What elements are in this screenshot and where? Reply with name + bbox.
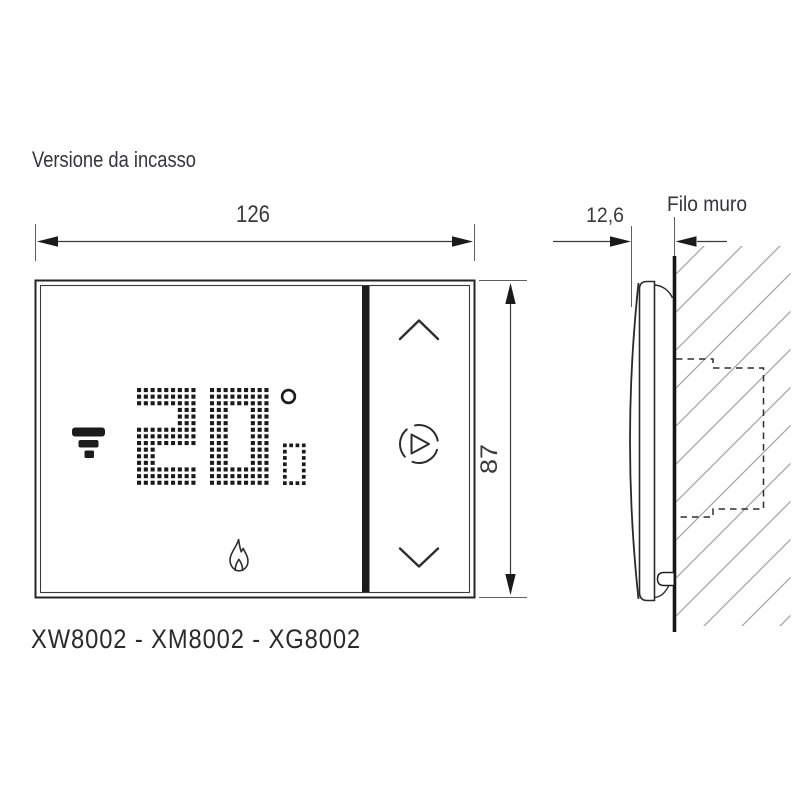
arrowhead-down-icon xyxy=(505,574,515,595)
arrowhead-up-icon xyxy=(505,283,515,304)
width-value: 126 xyxy=(236,201,270,228)
device-back-plate xyxy=(640,282,655,601)
curved-front-face xyxy=(630,283,639,599)
height-dimension: 87 xyxy=(476,281,527,598)
front-view: 126 xyxy=(36,201,528,598)
device-side-profile xyxy=(630,282,674,601)
depth-value: 12,6 xyxy=(586,204,624,227)
side-view: 12,6 Filo muro xyxy=(553,193,791,632)
wall-line-label: Filo muro xyxy=(667,193,747,216)
technical-drawing-page: Versione da incasso 126 xyxy=(0,0,800,800)
arrowhead-left-icon xyxy=(676,236,697,246)
height-value: 87 xyxy=(476,444,503,474)
page-title: Versione da incasso xyxy=(32,147,196,172)
wall-hatching xyxy=(677,246,791,626)
display-separator-bar xyxy=(362,286,370,592)
fixing-screw-pin xyxy=(658,573,674,586)
arrowhead-right-icon xyxy=(610,236,631,246)
product-codes: XW8002 - XM8002 - XG8002 xyxy=(31,624,361,654)
arrowhead-right-icon xyxy=(452,236,473,246)
thermostat-dimension-drawing: Versione da incasso 126 xyxy=(0,0,800,800)
arrowhead-left-icon xyxy=(37,236,58,246)
device-outer-frame xyxy=(36,281,475,598)
width-dimension: 126 xyxy=(36,201,475,261)
top-mount-bracket xyxy=(655,285,673,298)
